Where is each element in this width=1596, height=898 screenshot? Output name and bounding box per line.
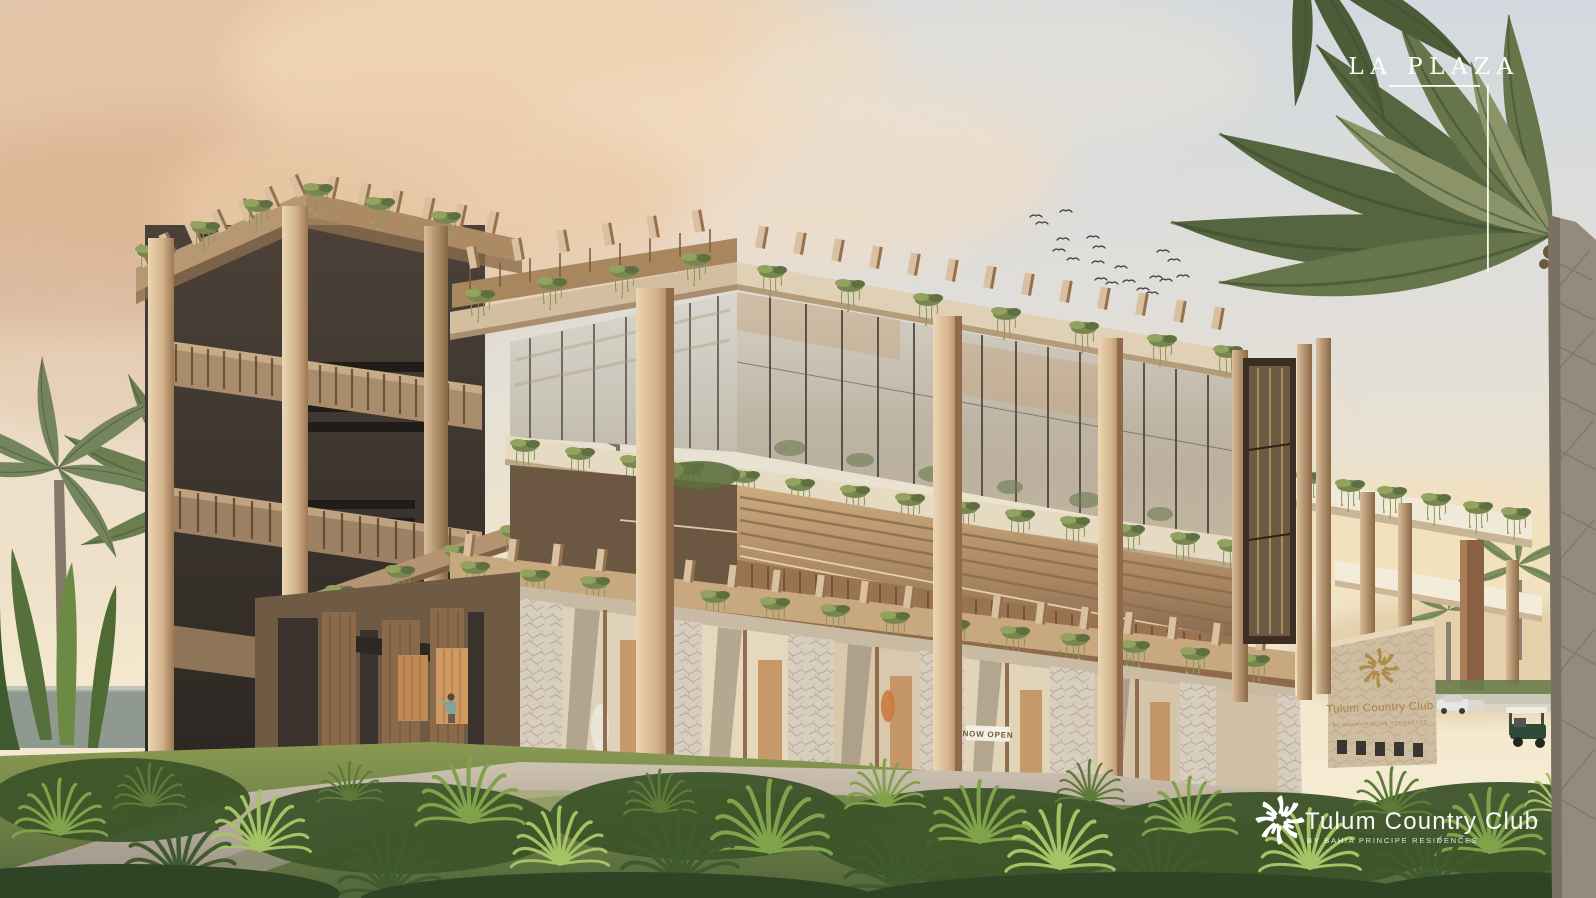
now-open-sign: NOW OPEN — [962, 725, 1013, 742]
scene-canvas: Tulum Country Club BY BAHIA PRINCIPE RES… — [0, 0, 1596, 898]
svg-text:NOW OPEN: NOW OPEN — [962, 729, 1013, 740]
watermark-sub-text: BY BAHIA PRINCIPE RESIDENCES — [1307, 836, 1479, 845]
architectural-rendering: Tulum Country Club BY BAHIA PRINCIPE RES… — [0, 0, 1596, 898]
plaza-underline — [1389, 85, 1480, 87]
plaza-vertical-rule — [1487, 85, 1489, 272]
plaza-title-text: LA PLAZA — [1348, 54, 1519, 80]
monument-sign: Tulum Country Club BY BAHIA PRINCIPE RES… — [1326, 620, 1437, 768]
watermark-brand-text: Tulum Country Club — [1305, 808, 1539, 835]
